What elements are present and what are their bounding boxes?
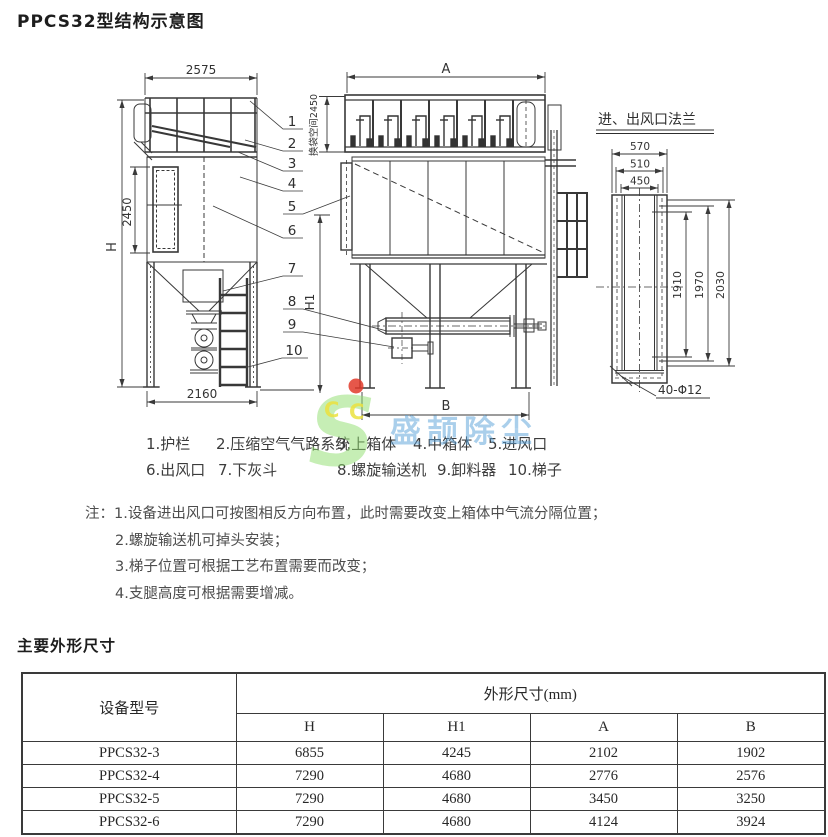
callout-3: 3 [288, 156, 297, 172]
col-header-model: 设备型号 [22, 673, 236, 742]
note-item: 1.设备进出风口可按图相反方向布置，此时需要改变上箱体中气流分隔位置； [114, 506, 606, 522]
dim-B: B [442, 399, 451, 414]
note-line: 注：1.设备进出风口可按图相反方向布置，此时需要改变上箱体中气流分隔位置； [85, 501, 606, 528]
dim-2030: 2030 [714, 271, 727, 299]
dim-A: A [442, 62, 451, 77]
callout-9: 9 [288, 317, 297, 333]
callout-4: 4 [288, 176, 297, 192]
side-view-drawing [134, 98, 261, 387]
table-row: PPCS32-3 6855 4245 2102 1902 [22, 742, 825, 765]
notes-block: 注：1.设备进出风口可按图相反方向布置，此时需要改变上箱体中气流分隔位置； 2.… [85, 501, 606, 607]
cell-B: 3924 [677, 811, 825, 835]
cell-A: 2102 [530, 742, 677, 765]
cell-H: 6855 [236, 742, 383, 765]
table-row: PPCS32-5 7290 4680 3450 3250 [22, 788, 825, 811]
table-row: PPCS32-6 7290 4680 4124 3924 [22, 811, 825, 835]
cell-model: PPCS32-4 [22, 765, 236, 788]
col-header-group: 外形尺寸(mm) [236, 673, 825, 714]
dim-bag-space: 换袋空间2450 [308, 94, 320, 156]
callout-2: 2 [288, 136, 297, 152]
dim-2575: 2575 [186, 63, 217, 77]
col-header-A: A [530, 714, 677, 742]
cell-B: 2576 [677, 765, 825, 788]
bolt-note: 40-Φ12 [658, 383, 702, 397]
page-title: PPCS32型结构示意图 [17, 7, 205, 32]
cell-A: 3450 [530, 788, 677, 811]
callout-1: 1 [288, 114, 297, 130]
dim-450: 450 [630, 176, 650, 188]
dim-H: H [105, 242, 120, 252]
pulse-valve [379, 116, 400, 146]
note-line: 3.梯子位置可根据工艺布置需要而改变； [115, 554, 606, 581]
callout-8: 8 [288, 294, 297, 310]
cell-H: 7290 [236, 765, 383, 788]
note-line: 4.支腿高度可根据需要增减。 [115, 581, 606, 608]
pulse-valve [407, 116, 428, 146]
callout-5: 5 [288, 199, 297, 215]
cell-H1: 4245 [383, 742, 530, 765]
cell-model: PPCS32-6 [22, 811, 236, 835]
cell-model: PPCS32-5 [22, 788, 236, 811]
dim-1910: 1910 [671, 271, 684, 299]
flange-title: 进、出风口法兰 [598, 112, 696, 128]
cell-A: 2776 [530, 765, 677, 788]
pulse-valve [351, 116, 372, 146]
note-line: 2.螺旋输送机可掉头安装； [115, 528, 606, 555]
dim-1970: 1970 [693, 271, 706, 299]
cell-H: 7290 [236, 788, 383, 811]
cell-B: 3250 [677, 788, 825, 811]
dim-2160: 2160 [187, 387, 218, 401]
callout-6: 6 [288, 223, 297, 239]
front-view-dimensions [319, 72, 545, 420]
callout-10: 10 [285, 343, 302, 359]
cell-H1: 4680 [383, 765, 530, 788]
col-header-H: H [236, 714, 383, 742]
cell-model: PPCS32-3 [22, 742, 236, 765]
dim-H1: H1 [303, 294, 317, 311]
col-header-B: B [677, 714, 825, 742]
table-row: PPCS32-4 7290 4680 2776 2576 [22, 765, 825, 788]
dim-510: 510 [630, 159, 650, 171]
cell-H: 7290 [236, 811, 383, 835]
pulse-valve [435, 116, 456, 146]
section-title: 主要外形尺寸 [17, 634, 116, 656]
pulse-valve [463, 116, 484, 146]
dim-570: 570 [630, 141, 650, 153]
note-prefix: 注： [85, 506, 114, 522]
flange-title-underline [596, 130, 714, 134]
cell-A: 4124 [530, 811, 677, 835]
pulse-valve [491, 116, 512, 146]
cell-H1: 4680 [383, 811, 530, 835]
cell-H1: 4680 [383, 788, 530, 811]
cell-B: 1902 [677, 742, 825, 765]
dimensions-table: 设备型号 外形尺寸(mm) H H1 A B PPCS32-3 6855 424… [21, 672, 826, 835]
callout-7: 7 [288, 261, 297, 277]
col-header-H1: H1 [383, 714, 530, 742]
dim-2450: 2450 [120, 197, 134, 226]
